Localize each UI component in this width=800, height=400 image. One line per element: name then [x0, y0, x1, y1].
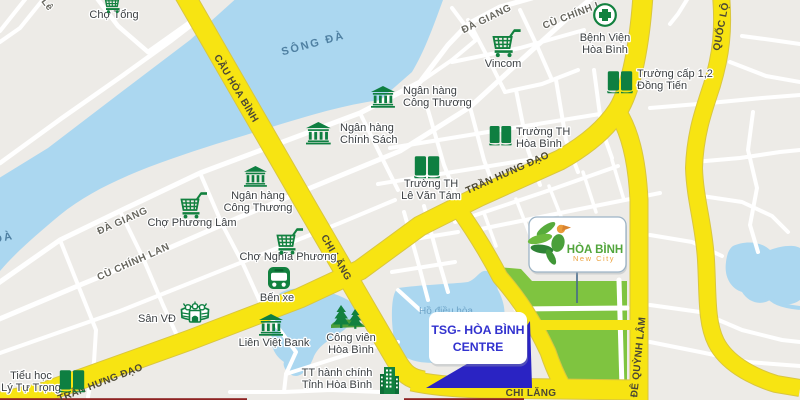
svg-text:Chợ Nghĩa Phương: Chợ Nghĩa Phương: [239, 251, 336, 263]
svg-text:Bến xe: Bến xe: [260, 292, 294, 304]
svg-text:Liên Việt Bank: Liên Việt Bank: [239, 337, 310, 349]
svg-text:Ngân hàng: Ngân hàng: [231, 190, 285, 202]
svg-text:Vincom: Vincom: [485, 58, 521, 70]
svg-text:Lý Tự Trọng: Lý Tự Trọng: [1, 382, 61, 394]
svg-text:Công Thương: Công Thương: [224, 202, 293, 214]
svg-text:Trường cấp 1,2: Trường cấp 1,2: [637, 68, 713, 80]
svg-text:TT hành chính: TT hành chính: [302, 367, 373, 379]
svg-text:Bệnh Viện: Bệnh Viện: [580, 32, 631, 44]
svg-text:Đồng Tiến: Đồng Tiến: [637, 80, 687, 92]
svg-text:Chợ Phương Lâm: Chợ Phương Lâm: [147, 217, 236, 229]
svg-text:CENTRE: CENTRE: [453, 340, 504, 354]
svg-text:Lê Văn Tám: Lê Văn Tám: [401, 190, 461, 202]
svg-text:Hòa Bình: Hòa Bình: [516, 138, 562, 150]
svg-text:Công viên: Công viên: [326, 332, 376, 344]
svg-text:CHI LĂNG: CHI LĂNG: [506, 386, 557, 399]
svg-text:Chợ Tổng: Chợ Tổng: [89, 9, 138, 21]
svg-text:Công Thương: Công Thương: [403, 97, 472, 109]
svg-text:Tỉnh Hòa Bình: Tỉnh Hòa Bình: [302, 379, 372, 391]
svg-text:Ngân hàng: Ngân hàng: [403, 85, 457, 97]
svg-text:TSG- HÒA BÌNH: TSG- HÒA BÌNH: [431, 322, 524, 337]
svg-text:Trường TH: Trường TH: [516, 126, 570, 138]
svg-text:Tiểu học: Tiểu học: [10, 370, 52, 382]
svg-text:Sân VĐ: Sân VĐ: [138, 313, 176, 325]
svg-text:Trường TH: Trường TH: [404, 178, 458, 190]
svg-text:Chính Sách: Chính Sách: [340, 134, 397, 146]
svg-text:Ngân hàng: Ngân hàng: [340, 122, 394, 134]
svg-text:Hòa Bình: Hòa Bình: [328, 344, 374, 356]
svg-text:Hòa Bình: Hòa Bình: [582, 44, 628, 56]
svg-text:New City: New City: [573, 254, 615, 263]
